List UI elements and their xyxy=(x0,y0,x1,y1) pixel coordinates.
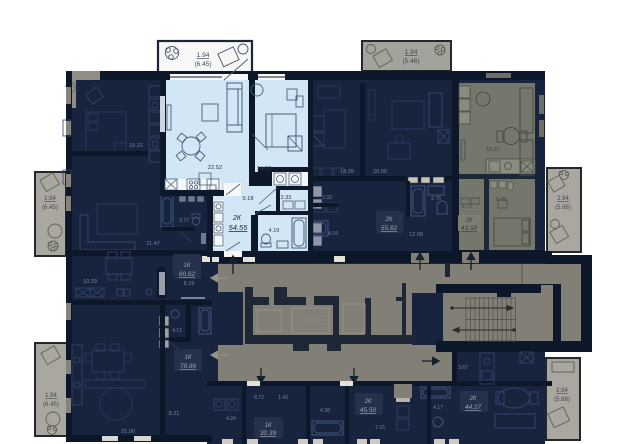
svg-text:45.50: 45.50 xyxy=(360,407,377,414)
svg-text:8.21: 8.21 xyxy=(169,411,180,417)
svg-text:8.72: 8.72 xyxy=(462,204,473,210)
svg-text:3.77: 3.77 xyxy=(179,218,189,224)
svg-text:10.29: 10.29 xyxy=(83,279,97,285)
svg-text:9.49: 9.49 xyxy=(496,197,507,203)
svg-text:4.17: 4.17 xyxy=(433,405,443,411)
svg-text:1.94: 1.94 xyxy=(44,196,56,202)
svg-text:(6.45): (6.45) xyxy=(195,61,212,68)
svg-text:12.08: 12.08 xyxy=(409,232,423,238)
svg-text:21.90: 21.90 xyxy=(121,429,135,435)
svg-text:14.39: 14.39 xyxy=(257,166,272,172)
svg-text:4.24: 4.24 xyxy=(226,416,236,422)
svg-text:1К: 1К xyxy=(185,355,192,361)
svg-text:(5.88): (5.88) xyxy=(555,205,571,211)
svg-text:2К: 2К xyxy=(364,399,372,405)
svg-text:1.94: 1.94 xyxy=(45,393,57,399)
svg-text:9.18: 9.18 xyxy=(242,196,253,202)
svg-text:(5.88): (5.88) xyxy=(554,397,570,403)
svg-text:4.19: 4.19 xyxy=(269,228,280,234)
svg-text:22.52: 22.52 xyxy=(208,165,223,171)
svg-text:44.27: 44.27 xyxy=(465,404,482,411)
svg-text:(5.46): (5.46) xyxy=(403,58,420,65)
svg-text:20.89: 20.89 xyxy=(373,169,387,175)
svg-text:2К: 2К xyxy=(469,396,477,402)
svg-text:2.94: 2.94 xyxy=(557,196,569,202)
svg-text:2.33: 2.33 xyxy=(322,195,332,201)
svg-text:1К: 1К xyxy=(184,263,191,269)
svg-text:4.38: 4.38 xyxy=(320,408,330,414)
svg-text:21.47: 21.47 xyxy=(146,241,160,247)
svg-text:8.19: 8.19 xyxy=(184,281,195,287)
svg-text:(6.45): (6.45) xyxy=(42,205,58,211)
svg-text:1.43: 1.43 xyxy=(278,395,288,401)
svg-text:55.82: 55.82 xyxy=(381,225,398,232)
svg-text:4.19: 4.19 xyxy=(328,231,338,237)
svg-text:(6.45): (6.45) xyxy=(43,402,59,408)
svg-text:3.67: 3.67 xyxy=(458,365,468,371)
svg-text:4.12: 4.12 xyxy=(172,328,182,334)
svg-text:78.86: 78.86 xyxy=(180,363,197,370)
svg-text:15.21: 15.21 xyxy=(129,143,143,149)
svg-text:1К: 1К xyxy=(265,423,272,429)
svg-text:43.58: 43.58 xyxy=(461,225,478,232)
svg-text:2К: 2К xyxy=(385,217,393,223)
svg-text:30.39: 30.39 xyxy=(260,430,277,437)
svg-text:8.72: 8.72 xyxy=(254,395,264,401)
svg-text:2.33: 2.33 xyxy=(281,195,292,201)
svg-text:18.67: 18.67 xyxy=(486,147,500,153)
svg-text:2.94: 2.94 xyxy=(556,388,568,394)
svg-text:54.55: 54.55 xyxy=(229,223,249,232)
svg-text:2К: 2К xyxy=(232,215,242,222)
svg-text:60.62: 60.62 xyxy=(179,271,196,278)
svg-text:7.15: 7.15 xyxy=(375,425,385,431)
svg-text:1.94: 1.94 xyxy=(405,49,418,56)
svg-text:2К: 2К xyxy=(465,218,473,224)
svg-text:2.76: 2.76 xyxy=(431,196,441,202)
svg-text:1.94: 1.94 xyxy=(197,52,210,59)
svg-text:14.39: 14.39 xyxy=(340,169,354,175)
